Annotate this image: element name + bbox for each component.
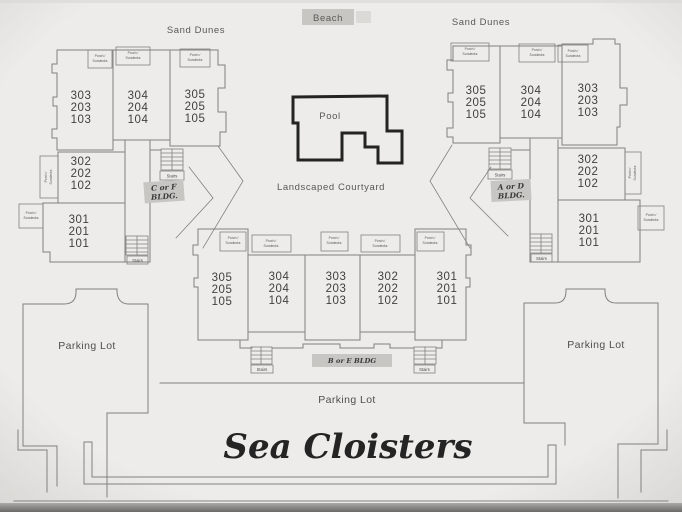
unit-number: 304 [128,90,149,102]
porch-label-line1: Porch / [26,211,37,215]
porch-label-line1: Porch / [425,236,436,240]
porch-label-line2: Sundecks [24,216,39,220]
sea-cloisters-site-plan: Beach Sand Dunes Sand Dunes Landscaped C… [0,0,682,512]
unit-number: 204 [269,283,290,295]
center-unit-stack-303: 303 203 103 [326,271,347,307]
right-unit-stack-304: 304 204 104 [521,85,542,121]
unit-number: 105 [466,109,487,121]
stairs-text: Stairs [257,367,268,372]
left-unit-stack-305: 305 205 105 [185,89,206,125]
center-unit-stack-304: 304 204 104 [269,271,290,307]
porch-label-line2: Sundecks [49,169,53,184]
porch-label-line1: Porch / [532,48,543,52]
unit-number: 102 [378,295,399,307]
left-building-name: C or F BLDG. [143,180,184,204]
unit-number: 105 [185,113,206,125]
landscaped-courtyard-text: Landscaped Courtyard [277,182,385,193]
unit-number: 305 [466,85,487,97]
beach-label: Beach [302,9,371,25]
porch-label-line2: Sundecks [327,241,342,245]
unit-number: 103 [578,107,599,119]
stairs-text: Stairs [419,367,430,372]
porch-label-line2: Sundecks [566,54,581,58]
unit-number: 301 [437,271,458,283]
unit-number: 201 [69,226,90,238]
beach-text: Beach [313,13,343,24]
porch-label-line1: Porch / [128,51,139,55]
unit-number: 105 [212,296,233,308]
porch-label-line1: Porch / [568,49,579,53]
porch-label-line2: Sundecks [126,56,141,60]
unit-number: 302 [378,271,399,283]
center-unit-stack-301: 301 201 101 [437,271,458,307]
porch-label-line2: Sundecks [530,53,545,57]
unit-number: 204 [521,97,542,109]
right-unit-stack-302: 302 202 102 [578,154,599,190]
unit-number: 205 [212,284,233,296]
unit-number: 203 [71,102,92,114]
center-unit-stack-302: 302 202 102 [378,271,399,307]
unit-number: 301 [579,213,600,225]
parking-left-text: Parking Lot [58,340,116,352]
left-unit-stack-301: 301 201 101 [69,214,90,250]
unit-number: 101 [437,295,458,307]
photo-bottom-strip [0,503,682,512]
unit-number: 101 [579,237,600,249]
porch-label-line2: Sundecks [264,244,279,248]
unit-number: 101 [69,238,90,250]
porch-label-line2: Sundecks [633,165,637,180]
unit-number: 104 [269,295,290,307]
unit-number: 201 [579,225,600,237]
stairs-text: Stairs [536,256,547,261]
center-building-name: B or E BLDG [312,354,392,367]
building-name: B or E BLDG [327,357,377,365]
porch-label-line1: Porch / [646,213,657,217]
unit-number: 202 [378,283,399,295]
parking-bottom-text: Parking Lot [318,394,376,406]
porch-label-line2: Sundecks [93,59,108,63]
unit-number: 201 [437,283,458,295]
unit-number: 202 [578,166,599,178]
unit-number: 102 [578,178,599,190]
unit-number: 205 [466,97,487,109]
unit-number: 202 [71,168,92,180]
photo-top-edge [0,0,682,3]
unit-number: 303 [578,83,599,95]
site-plan-photo: Beach Sand Dunes Sand Dunes Landscaped C… [0,0,682,512]
site-title: Sea Cloisters [223,427,472,467]
unit-number: 104 [521,109,542,121]
porch-label-line2: Sundecks [188,58,203,62]
pool-text: Pool [319,111,340,122]
porch-label-line1: Porch / [95,54,106,58]
unit-number: 203 [326,283,347,295]
left-unit-stack-303: 303 203 103 [71,90,92,126]
unit-number: 104 [128,114,149,126]
porch-label-line1: Porch / [266,239,277,243]
unit-number: 102 [71,180,92,192]
porch-label-line2: Sundecks [644,218,659,222]
beach-highlight-smudge [356,11,371,23]
unit-number: 302 [578,154,599,166]
stairs-text: Stairs [132,258,143,263]
sand-dunes-left-text: Sand Dunes [167,25,225,36]
center-unit-stack-305: 305 205 105 [212,272,233,308]
porch-label-line2: Sundecks [373,244,388,248]
porch-label-line2: Sundecks [226,241,241,245]
unit-number: 103 [71,114,92,126]
unit-number: 302 [71,156,92,168]
porch-label-line1: Porch / [628,168,632,179]
sand-dunes-right-text: Sand Dunes [452,17,510,28]
right-unit-stack-301: 301 201 101 [579,213,600,249]
right-unit-stack-305: 305 205 105 [466,85,487,121]
unit-number: 305 [212,272,233,284]
unit-number: 304 [269,271,290,283]
unit-number: 103 [326,295,347,307]
unit-number: 303 [326,271,347,283]
porch-label-line1: Porch / [329,236,340,240]
unit-number: 203 [578,95,599,107]
porch-label-line1: Porch / [190,53,201,57]
porch-label-line1: Porch / [465,47,476,51]
unit-number: 305 [185,89,206,101]
porch-label-line1: Porch / [44,172,48,183]
unit-number: 205 [185,101,206,113]
porch-label-line1: Porch / [228,236,239,240]
porch-label-line2: Sundecks [423,241,438,245]
porch-label-line1: Porch / [375,239,386,243]
building-name-line2: BLDG. [497,190,526,200]
unit-number: 304 [521,85,542,97]
stairs-text: Stairs [167,174,178,179]
left-unit-stack-304: 304 204 104 [128,90,149,126]
right-building-name: A or D BLDG. [491,179,532,202]
left-unit-stack-302: 302 202 102 [71,156,92,192]
unit-number: 204 [128,102,149,114]
porch-label-line2: Sundecks [463,52,478,56]
parking-right-text: Parking Lot [567,339,625,351]
unit-number: 303 [71,90,92,102]
unit-number: 301 [69,214,90,226]
stairs-text: Stairs [495,173,506,178]
right-unit-stack-303: 303 203 103 [578,83,599,119]
